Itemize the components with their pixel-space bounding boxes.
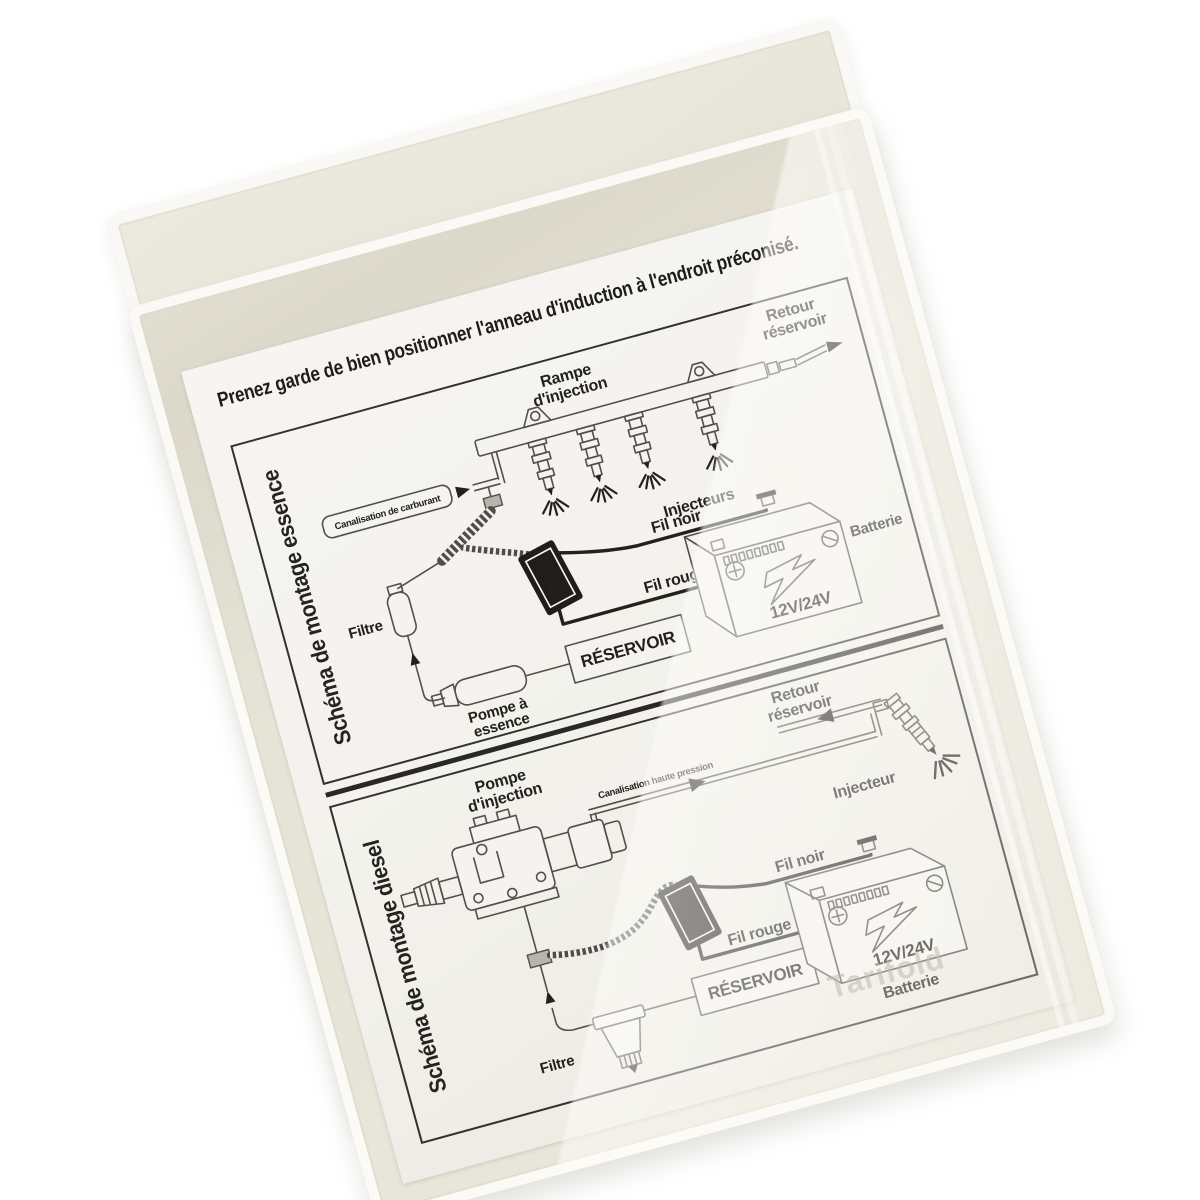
batterie-label: Batterie bbox=[848, 510, 904, 541]
flow-arrow-icon bbox=[455, 483, 472, 498]
pump-outlet-line bbox=[524, 906, 547, 991]
batterie-label: Batterie bbox=[881, 971, 941, 1003]
return-arrow-icon bbox=[826, 338, 844, 353]
induction-ring bbox=[527, 949, 552, 967]
fil-noir-label: Fil noir bbox=[773, 847, 827, 877]
filtre-label: Filtre bbox=[347, 617, 385, 643]
injecteur-label: Injecteur bbox=[831, 769, 897, 802]
flow-up-arrow-icon bbox=[543, 990, 556, 1004]
reservoir-box: RÉSERVOIR bbox=[565, 615, 691, 683]
front-plastic-sleeve: Prenez garde de bien positionner l'annea… bbox=[126, 106, 1117, 1200]
injector-icon bbox=[878, 688, 964, 782]
filtre-label: Filtre bbox=[538, 1052, 576, 1078]
instruction-sheet: Prenez garde de bien positionner l'annea… bbox=[181, 188, 1075, 1184]
fuel-filter bbox=[592, 990, 711, 1080]
flow-up-arrow-icon bbox=[408, 652, 421, 666]
high-pressure-line: Canalisation haute pression bbox=[582, 699, 901, 834]
product-photo-scene: Prenez garde de bien positionner l'annea… bbox=[0, 0, 1200, 1200]
injection-rail bbox=[470, 325, 846, 456]
